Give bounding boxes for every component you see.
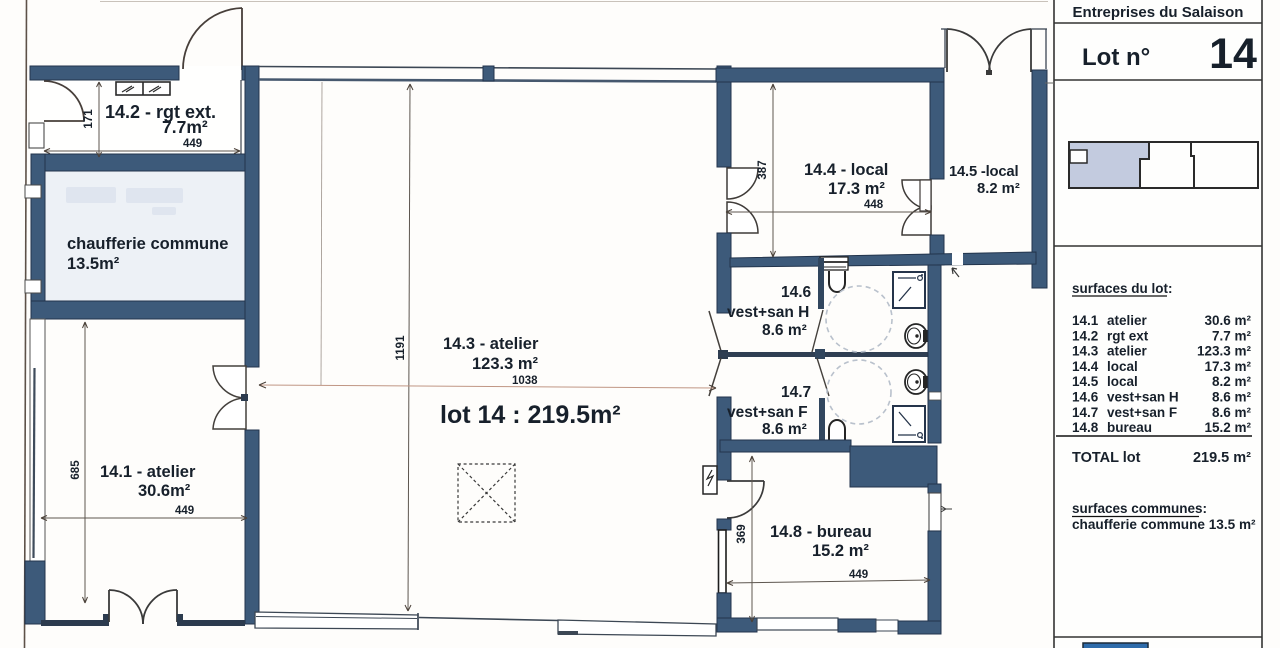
svg-text:14.1: 14.1 (1072, 313, 1099, 328)
svg-text:387: 387 (757, 160, 769, 179)
svg-text:30.6 m²: 30.6 m² (1204, 313, 1251, 328)
svg-text:123.3 m²: 123.3 m² (472, 355, 539, 373)
svg-text:13.5m²: 13.5m² (67, 255, 120, 273)
svg-text:8.6 m²: 8.6 m² (1212, 405, 1252, 420)
svg-text:15.2 m²: 15.2 m² (1204, 420, 1251, 435)
svg-text:atelier: atelier (1107, 344, 1148, 359)
svg-text:1191: 1191 (395, 335, 407, 361)
svg-text:atelier: atelier (1107, 313, 1148, 328)
svg-text:chaufferie commune: chaufferie commune (67, 235, 228, 253)
svg-text:TOTAL lot: TOTAL lot (1072, 450, 1141, 466)
svg-text:14.3: 14.3 (1072, 344, 1099, 359)
svg-text:lot 14 : 219.5m²: lot 14 : 219.5m² (440, 401, 621, 429)
svg-text:449: 449 (183, 138, 202, 150)
svg-text:449: 449 (175, 505, 194, 517)
svg-text:1038: 1038 (512, 375, 538, 387)
svg-text:local: local (1107, 374, 1138, 389)
svg-text:14: 14 (1209, 30, 1257, 78)
svg-text:14.4: 14.4 (1072, 359, 1099, 374)
svg-text:17.3 m²: 17.3 m² (1204, 359, 1251, 374)
svg-text:14.1 - atelier: 14.1 - atelier (100, 463, 196, 481)
svg-text:14.3 - atelier: 14.3 - atelier (443, 335, 539, 353)
svg-text:8.6 m²: 8.6 m² (1212, 390, 1252, 405)
svg-text:vest+san H: vest+san H (1107, 390, 1179, 405)
svg-text:rgt ext: rgt ext (1107, 328, 1149, 343)
svg-text:14.6: 14.6 (1072, 390, 1099, 405)
svg-text:7.7 m²: 7.7 m² (1212, 328, 1252, 343)
svg-text:bureau: bureau (1107, 420, 1152, 435)
svg-text:14.8: 14.8 (1072, 420, 1099, 435)
svg-text:171: 171 (83, 109, 95, 129)
svg-text:14.7: 14.7 (1072, 405, 1098, 420)
svg-text:14.4 - local: 14.4 - local (804, 161, 888, 179)
svg-text:123.3 m²: 123.3 m² (1197, 344, 1252, 359)
svg-text:448: 448 (864, 199, 884, 211)
svg-text:vest+san H: vest+san H (727, 304, 809, 321)
svg-text:14.5 -local: 14.5 -local (949, 164, 1018, 180)
svg-text:8.6 m²: 8.6 m² (762, 421, 807, 438)
svg-text:14.2: 14.2 (1072, 328, 1098, 343)
svg-text:8.2 m²: 8.2 m² (1212, 374, 1252, 389)
svg-text:17.3 m²: 17.3 m² (828, 180, 885, 198)
svg-text:8.2 m²: 8.2 m² (977, 181, 1020, 197)
svg-text:vest+san F: vest+san F (1107, 405, 1177, 420)
svg-text:14.5: 14.5 (1072, 374, 1099, 389)
svg-text:chaufferie commune 13.5 m²: chaufferie commune 13.5 m² (1072, 517, 1256, 532)
svg-text:449: 449 (849, 569, 868, 581)
svg-text:14.7: 14.7 (781, 384, 811, 401)
svg-text:local: local (1107, 359, 1138, 374)
svg-text:7.7m²: 7.7m² (162, 117, 208, 137)
svg-text:8.6 m²: 8.6 m² (762, 322, 807, 339)
svg-text:surfaces communes:: surfaces communes: (1072, 501, 1207, 516)
svg-text:685: 685 (70, 460, 82, 480)
svg-text:15.2 m²: 15.2 m² (812, 542, 869, 560)
svg-text:Lot n°: Lot n° (1082, 44, 1150, 71)
svg-text:369: 369 (736, 524, 748, 543)
svg-text:219.5 m²: 219.5 m² (1193, 450, 1251, 466)
svg-text:30.6m²: 30.6m² (138, 482, 191, 500)
svg-text:surfaces du lot:: surfaces du lot: (1072, 281, 1173, 296)
svg-text:vest+san F: vest+san F (727, 404, 808, 421)
svg-text:14.6: 14.6 (781, 284, 812, 301)
svg-text:Entreprises du Salaison: Entreprises du Salaison (1073, 4, 1244, 21)
svg-text:14.8 - bureau: 14.8 - bureau (770, 523, 872, 541)
